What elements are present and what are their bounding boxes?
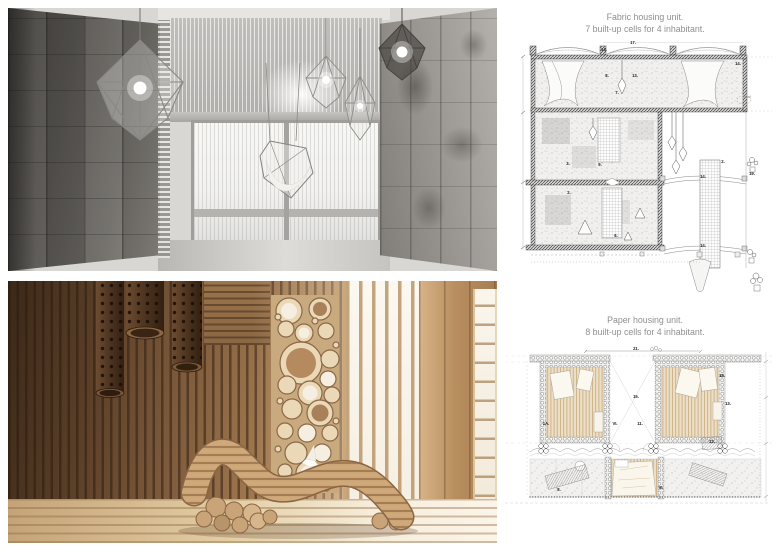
diamond-pendant-lamp-center bbox=[306, 18, 346, 108]
bottom-center-room bbox=[605, 457, 664, 499]
diamond-pendant-lamp-large bbox=[97, 8, 183, 140]
paper-interior-render bbox=[8, 281, 497, 543]
plan-label: 9. bbox=[598, 162, 602, 167]
fabric-plan-title-line2: 7 built-up cells for 4 inhabitant. bbox=[515, 24, 775, 36]
diamond-pendant-lamp-tall bbox=[345, 28, 375, 140]
bed bbox=[550, 370, 574, 399]
plant-sketch bbox=[651, 346, 662, 351]
plan-label: 14. bbox=[735, 61, 741, 66]
paper-floor-plan: cut patra domu nr 09, dule 1:50 bbox=[505, 346, 775, 514]
plan-label: 13. bbox=[632, 73, 638, 78]
plan-label: 12. bbox=[709, 439, 715, 444]
top-dimension-line bbox=[584, 346, 702, 353]
mesh-stair-panel bbox=[598, 118, 620, 162]
plan-label: 2. bbox=[567, 190, 571, 195]
mesh-panel-lower bbox=[602, 188, 622, 238]
perforated-tube-pendant-2 bbox=[126, 281, 164, 339]
plan-label: 7. bbox=[615, 90, 619, 95]
bottom-left-zone bbox=[530, 459, 610, 497]
bed bbox=[699, 367, 718, 391]
pillow bbox=[615, 460, 628, 467]
paper-render-overlay bbox=[8, 281, 497, 543]
plan-label: 14. bbox=[700, 243, 706, 248]
plan-label: 13. bbox=[725, 401, 731, 406]
plan-label: 21. bbox=[633, 346, 639, 351]
plan-label: 11. bbox=[637, 421, 643, 426]
paper-plan-title-line1: Paper housing unit. bbox=[515, 315, 775, 327]
plan-label: 1A. bbox=[543, 421, 550, 426]
presentation-board: Fabric housing unit. 7 built-up cells fo… bbox=[0, 0, 780, 551]
diamond-pendant-lamp-dark bbox=[379, 8, 425, 80]
balcony bbox=[660, 96, 751, 292]
fabric-plan-title-line1: Fabric housing unit. bbox=[515, 12, 775, 24]
curtain-track-top bbox=[537, 43, 743, 55]
bottom-right-zone bbox=[664, 436, 761, 497]
paper-plan-title: Paper housing unit. 8 built-up cells for… bbox=[515, 315, 775, 338]
fabric-interior-render bbox=[8, 8, 497, 271]
plan-label: 17. bbox=[630, 40, 636, 45]
plan-label: 3. bbox=[566, 161, 570, 166]
paper-plan-title-line2: 8 built-up cells for 4 inhabitant. bbox=[515, 327, 775, 339]
mat bbox=[713, 402, 722, 420]
fabric-floor-plan: 17.14.14.8.13.7.3.9.2.6.2.14.14.19.detai… bbox=[508, 40, 778, 302]
plan-label: 2. bbox=[721, 159, 725, 164]
central-open-space bbox=[610, 361, 655, 443]
plan-label: 8. bbox=[557, 487, 561, 492]
perforated-tube-pendant-3 bbox=[172, 281, 202, 372]
hanging-cone-drape bbox=[689, 259, 711, 292]
left-cell-room bbox=[540, 361, 610, 443]
plan-label: 15. bbox=[633, 394, 639, 399]
right-cell-room bbox=[655, 361, 725, 443]
plan-label: 19. bbox=[749, 171, 755, 176]
mat bbox=[594, 412, 603, 432]
plan-label: 14. bbox=[601, 47, 607, 52]
dimension-line-left bbox=[521, 55, 525, 250]
plan-label: 8. bbox=[605, 73, 609, 78]
perforated-tube-pendant-1 bbox=[96, 281, 124, 398]
plan-label: VI. bbox=[658, 485, 663, 490]
plan-label: 18. bbox=[719, 373, 725, 378]
plan-label: 6. bbox=[614, 233, 618, 238]
fabric-render-overlay bbox=[8, 8, 497, 271]
plan-label: 14. bbox=[700, 174, 706, 179]
plants bbox=[747, 158, 763, 292]
plan-label: VI. bbox=[612, 421, 617, 426]
plan-label: detail bbox=[743, 95, 751, 99]
hanging-wire-chair bbox=[260, 63, 313, 198]
fabric-plan-title: Fabric housing unit. 7 built-up cells fo… bbox=[515, 12, 775, 35]
